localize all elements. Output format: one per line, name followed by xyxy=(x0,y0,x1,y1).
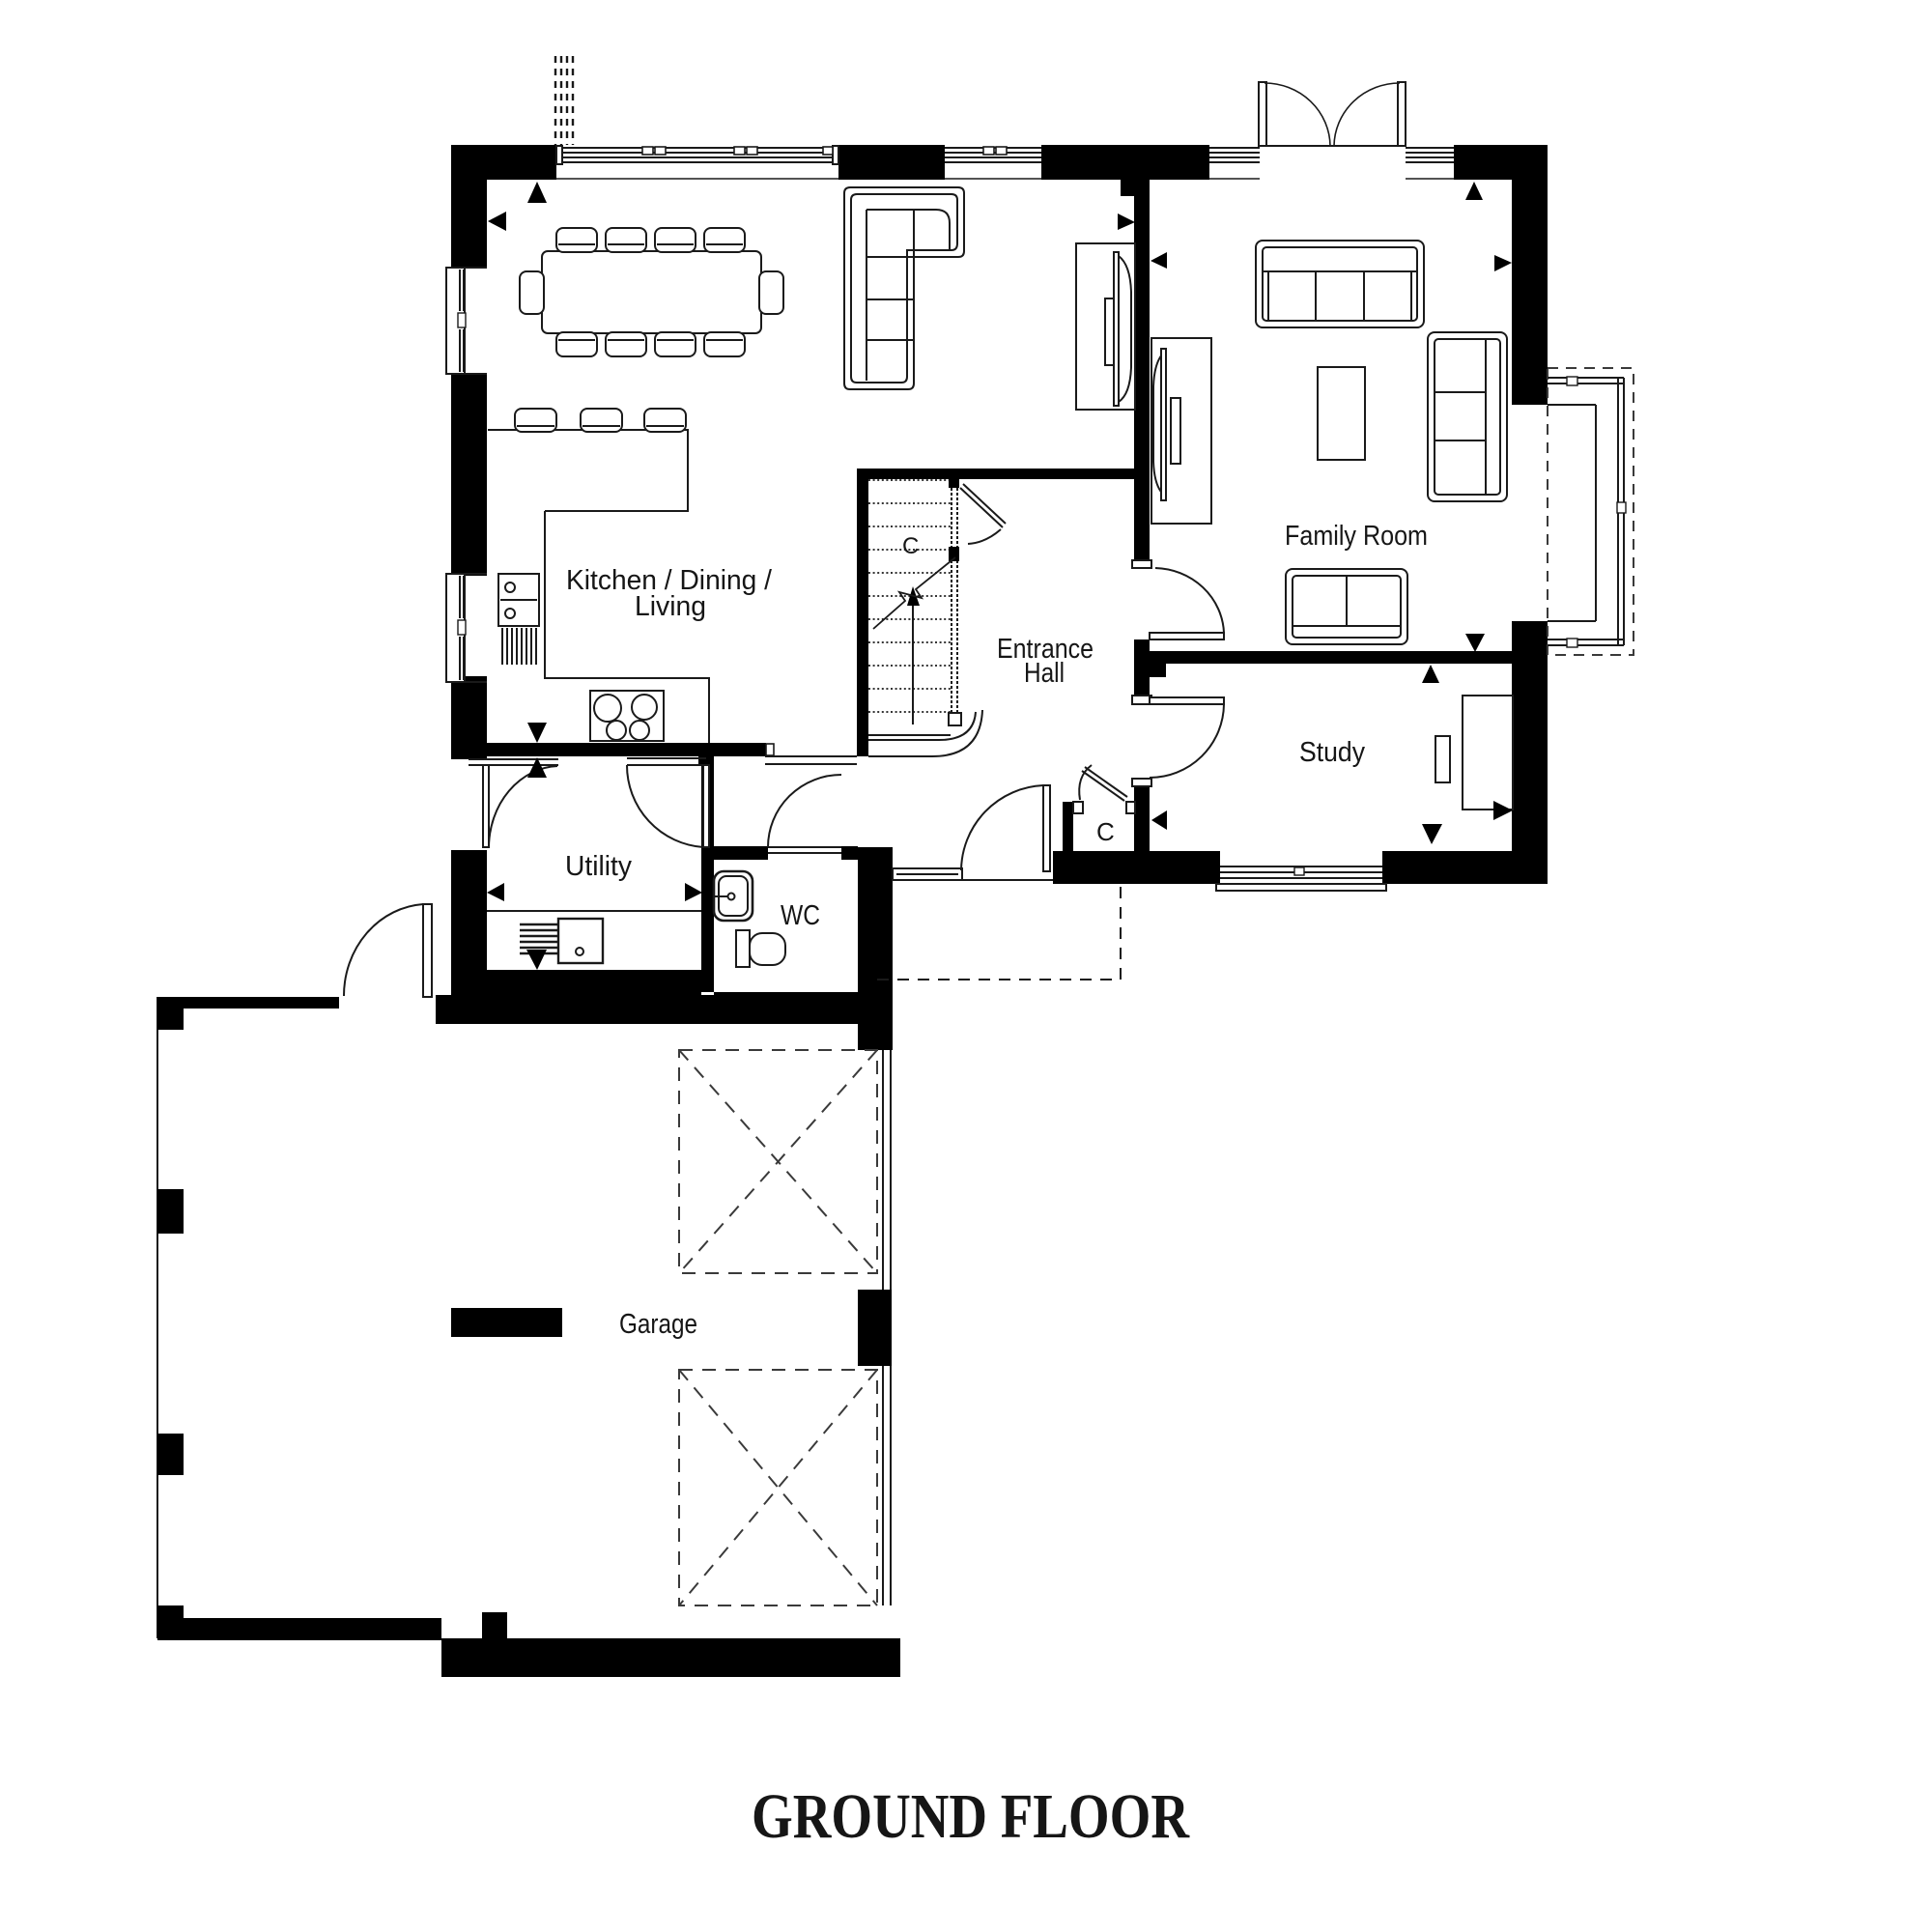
svg-text:Utility: Utility xyxy=(565,851,632,882)
svg-text:Living: Living xyxy=(635,591,706,622)
svg-text:Garage: Garage xyxy=(619,1309,697,1340)
svg-text:Family Room: Family Room xyxy=(1285,521,1428,552)
svg-text:Hall: Hall xyxy=(1024,658,1065,689)
svg-text:C: C xyxy=(1096,817,1115,846)
svg-text:Study: Study xyxy=(1299,737,1365,768)
svg-text:C: C xyxy=(902,533,919,559)
svg-text:GROUND FLOOR: GROUND FLOOR xyxy=(752,1781,1190,1852)
svg-text:WC: WC xyxy=(781,900,820,931)
